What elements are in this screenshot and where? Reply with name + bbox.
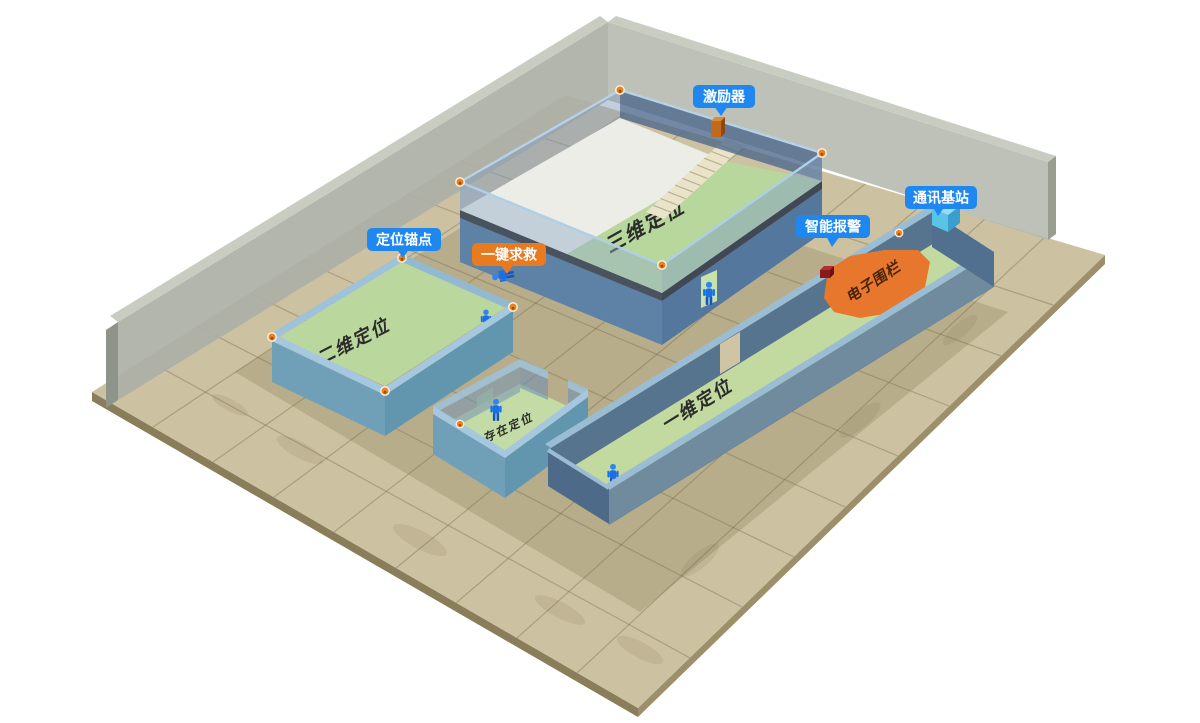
exciter-device-icon [711, 117, 725, 137]
anchor-dot-icon [456, 420, 464, 428]
callout-comm-base-label: 通讯基站 [913, 190, 969, 206]
anchor-dot-icon [818, 149, 826, 157]
back-wall-right-cap [1048, 156, 1056, 240]
anchor-dot-icon [895, 229, 903, 237]
anchor-dot-icon [616, 86, 624, 94]
anchor-dot-icon [658, 261, 666, 269]
anchor-dot-icon [381, 387, 389, 395]
anchor-dot-icon [509, 303, 517, 311]
callout-sos-label: 一键求救 [481, 247, 538, 263]
callout-smart-alarm-label: 智能报警 [804, 219, 861, 235]
anchor-dot-icon [268, 333, 276, 341]
callout-anchor-point-label: 定位锚点 [376, 232, 432, 248]
scene-svg: 三维定位 [0, 0, 1200, 723]
anchor-dot-icon [456, 178, 464, 186]
callout-exciter-label: 激励器 [703, 89, 746, 105]
back-wall-left-cap [106, 322, 118, 408]
scene-stage: 三维定位 [0, 0, 1200, 723]
